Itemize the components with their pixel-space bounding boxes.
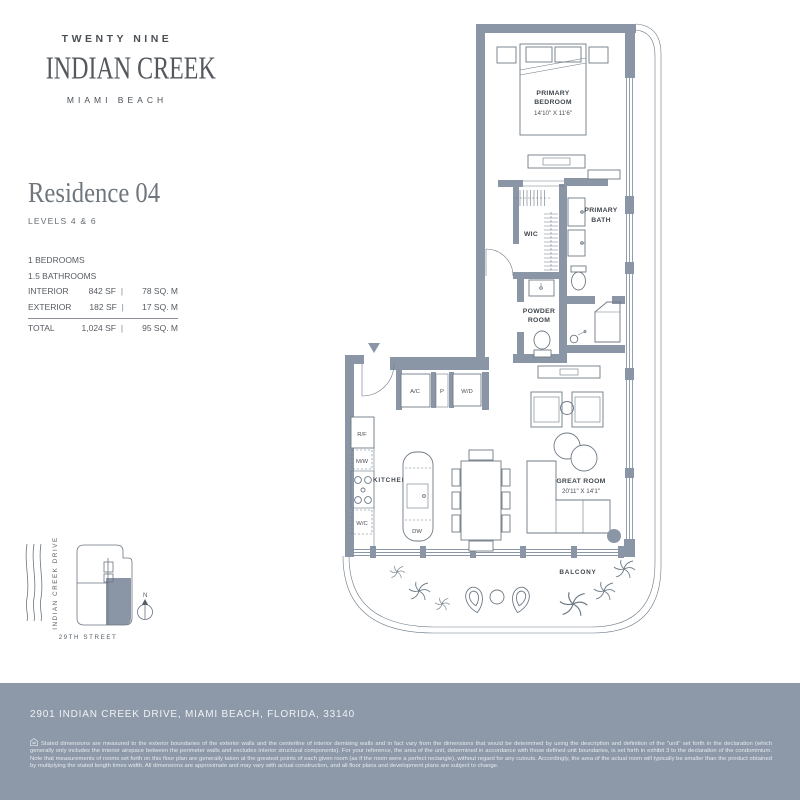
console [588,170,620,179]
dining-chair [502,515,510,532]
palm-icon [409,582,430,600]
lounge-chair [464,586,486,615]
palm-icon [390,566,405,579]
suite-door [486,249,513,276]
media-console [538,366,600,378]
great-room-dims: 20'11" X 14'1" [562,488,600,495]
entry-marker [368,343,380,353]
bath-label-1: PRIMARY [584,207,617,214]
microwave-label: M/W [356,459,369,465]
dishwasher-label: DW [412,529,422,535]
wic-label: WIC [524,231,538,238]
powder-sink [529,280,554,296]
dining-chair [452,492,460,509]
dining-chair [452,515,460,532]
palm-icon [594,582,615,600]
balcony-label: BALCONY [559,569,596,576]
bar-sink [570,335,578,343]
wd-label: W/D [461,389,472,395]
dining-set [452,450,510,551]
utility-closets: A/C P W/D [401,374,481,407]
dresser [528,155,585,168]
fridge-label: R/F [357,432,367,438]
nightstand [497,47,516,63]
toilet [534,331,550,349]
room-primary-bath: PRIMARY BATH [568,198,618,290]
lounge-chair [510,586,532,615]
address-line: 2901 INDIAN CREEK DRIVE, MIAMI BEACH, FL… [30,709,355,720]
great-room-label: GREAT ROOM [556,478,605,485]
palm-icon [560,592,587,615]
north-label: N [143,592,149,599]
toilet-tank [534,350,551,357]
dining-chair [469,450,493,460]
toilet-tank [571,266,586,272]
room-powder: POWDER ROOM [523,280,555,357]
room-great: GREAT ROOM 20'11" X 14'1" [527,366,621,543]
palm-icon [435,598,450,611]
room-primary-bedroom: PRIMARY BEDROOM 14'10" X 11'6" [497,44,620,179]
unit-highlight [106,578,131,625]
dining-chair [452,469,460,486]
powder-label-2: ROOM [528,317,550,324]
site-map: INDIAN CREEK DRIVE 29TH STREET [26,536,132,641]
linen-closet [595,302,620,342]
sofa [527,461,610,533]
disclaimer: Stated dimensions are measured to the ex… [30,738,772,770]
pantry-label: P [440,389,444,395]
hall-zone [570,302,620,343]
bedroom-label-2: BEDROOM [534,99,572,106]
kitchen-label: KITCHEN [373,477,407,484]
north-arrow: N [138,592,153,620]
bedroom-dims: 14'10" X 11'6" [534,110,572,117]
disclaimer-text: Stated dimensions are measured to the ex… [30,741,772,769]
balcony-table [490,590,504,604]
dining-chair [502,469,510,486]
floor-plan: PRIMARY BEDROOM 14'10" X 11'6" WIC PRIMA… [0,0,800,800]
dining-chair [469,541,493,551]
entry-door [362,364,394,396]
column [607,529,621,543]
coffee-table [571,445,597,471]
bedroom-label-1: PRIMARY [536,90,569,97]
island [403,452,433,541]
bath-label-2: BATH [591,217,611,224]
nightstand [589,47,608,63]
side-table [561,402,574,415]
street-label: 29TH STREET [59,634,118,641]
drive-label: INDIAN CREEK DRIVE [52,536,59,629]
powder-label-1: POWDER [523,308,555,315]
toilet [572,272,586,290]
room-kitchen: R/F M/W W/C KITCHEN DW [351,417,433,548]
water-lines [26,544,28,621]
palm-icon [614,560,635,578]
dining-chair [502,492,510,509]
ac-label: A/C [410,389,421,395]
wine-cooler-label: W/C [356,521,368,527]
equal-housing-icon [30,738,38,746]
footer: 2901 INDIAN CREEK DRIVE, MIAMI BEACH, FL… [0,683,800,800]
room-wic: WIC [516,190,558,272]
dining-table [461,461,501,540]
balcony: BALCONY [390,560,635,616]
